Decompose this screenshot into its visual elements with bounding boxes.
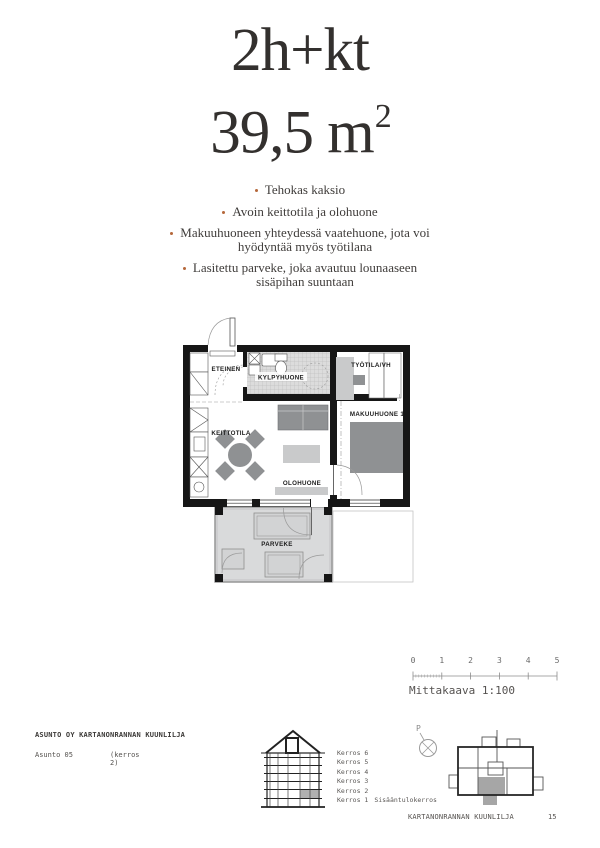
room-label-kylpyhuone: KYLPYHUONE	[258, 375, 304, 382]
apartment-info: Asunto 05 (kerros 2)	[35, 751, 73, 759]
list-item: Lasitettu parveke, joka avautuu lounaase…	[183, 261, 417, 288]
scale-tick-label: 4	[526, 656, 531, 665]
room-label-parveke: PARVEKE	[261, 541, 292, 548]
scale-bar-numbers: 0 1 2 3 4 5	[409, 656, 561, 666]
highlight-list: Tehokas kaksio Avoin keittotila ja olohu…	[0, 183, 600, 288]
room-label-eteinen: ETEINEN	[212, 366, 241, 373]
windows	[227, 499, 380, 507]
area-value: 39,5 m	[210, 99, 373, 166]
entry-floor-note: Sisääntulokerros	[374, 796, 437, 804]
floor-note: (kerros 2)	[110, 751, 140, 767]
page-number: 15	[548, 813, 556, 821]
room-label-olohuone: OLOHUONE	[283, 480, 321, 487]
keyplan-apartment-highlight	[478, 777, 505, 795]
room-label-makuuhuone: MAKUUHUONE 1	[350, 411, 404, 418]
page-title: 2h+kt 39,5 m2	[0, 16, 600, 168]
bullet-icon	[183, 267, 186, 270]
entrance-door	[208, 318, 237, 356]
floor-plan: ETEINEN KYLPYHUONE TYÖTILA/VH MAKUUHUONE…	[170, 305, 425, 600]
north-label: P	[416, 724, 421, 733]
scale-tick-label: 2	[468, 656, 473, 665]
floor-row-entry: Kerros 1Sisääntulokerros	[337, 796, 437, 805]
bullet-icon	[170, 232, 173, 235]
bullet-icon	[222, 211, 225, 214]
keyplan-balcony-highlight	[483, 795, 497, 805]
list-item: Makuuhuoneen yhteydessä vaatehuone, jota…	[170, 226, 429, 253]
apartment-number: Asunto 05	[35, 751, 73, 759]
building-section-diagram	[253, 718, 343, 813]
scale-tick-label: 0	[411, 656, 416, 665]
footer-project-name: KARTANONRANNAN KUUNLILJA	[408, 813, 514, 821]
scale-caption: Mittakaava 1:100	[409, 684, 515, 697]
kitchen-units	[190, 353, 208, 497]
neighbor-balcony-outline	[333, 511, 413, 582]
floor-row: Kerros 2	[337, 787, 437, 796]
scale-bar	[409, 670, 561, 682]
highlighted-floor	[300, 789, 318, 798]
workspace-furniture	[336, 353, 401, 400]
list-item: Tehokas kaksio	[255, 183, 345, 197]
highlight-text: Lasitettu parveke, joka avautuu lounaase…	[193, 261, 417, 288]
brochure-page: 2h+kt 39,5 m2 Tehokas kaksio Avoin keitt…	[0, 0, 600, 848]
scale-tick-label: 5	[555, 656, 560, 665]
bullet-icon	[255, 189, 258, 192]
room-label-tyotila: TYÖTILA/VH	[351, 362, 391, 369]
room-label-keittotila: KEITTOTILA	[211, 430, 251, 437]
key-plan	[443, 726, 553, 810]
bedroom-furniture	[341, 394, 403, 499]
scale-tick-label: 3	[497, 656, 502, 665]
company-name: ASUNTO OY KARTANONRANNAN KUUNLILJA	[35, 731, 185, 739]
apartment-type: 2h+kt	[0, 16, 600, 86]
scale-tick-label: 1	[439, 656, 444, 665]
area-superscript: 2	[375, 98, 391, 135]
highlight-text: Avoin keittotila ja olohuone	[232, 205, 377, 219]
highlight-text: Makuuhuoneen yhteydessä vaatehuone, jota…	[180, 226, 429, 253]
floor-label: Kerros 1	[337, 796, 368, 804]
floor-row: Kerros 3	[337, 777, 437, 786]
list-item: Avoin keittotila ja olohuone	[222, 205, 377, 219]
apartment-area: 39,5 m2	[0, 86, 600, 168]
compass-needle	[420, 733, 424, 740]
highlight-text: Tehokas kaksio	[265, 183, 345, 197]
